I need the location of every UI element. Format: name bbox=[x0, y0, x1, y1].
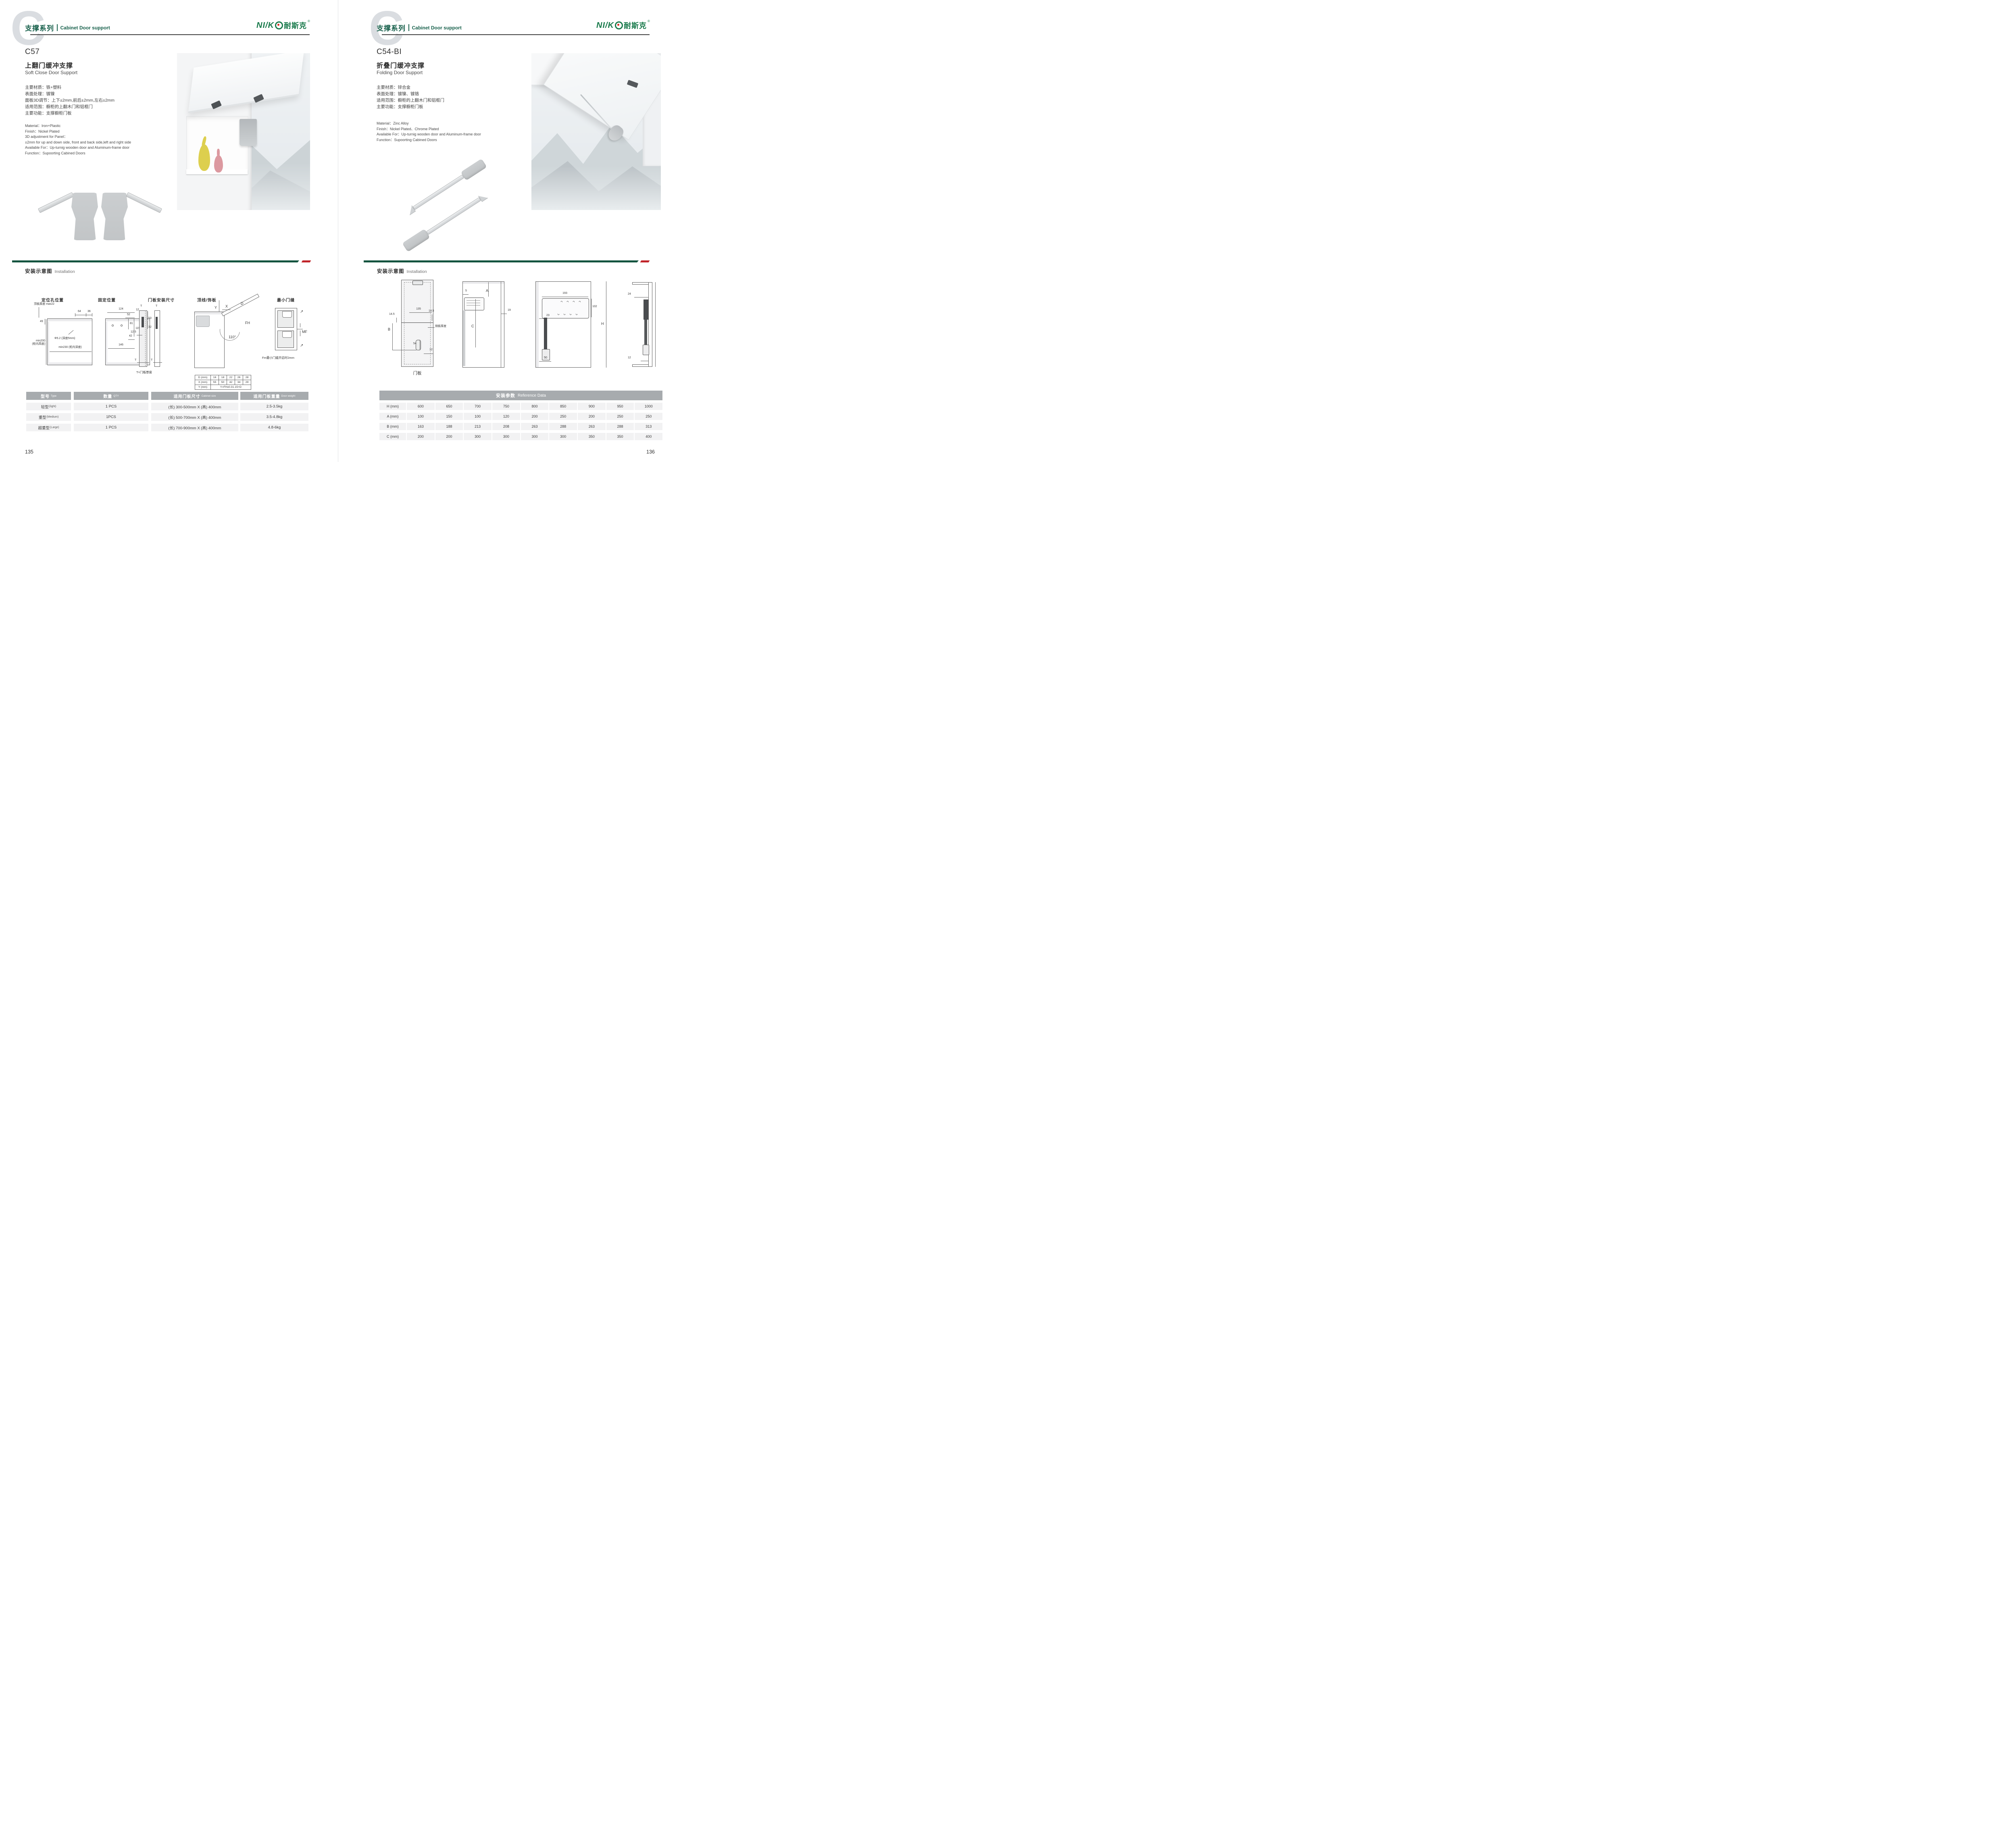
dim-label: C bbox=[471, 324, 474, 328]
product-title-en: Soft Close Door Support bbox=[25, 70, 77, 75]
table-cell: 208 bbox=[492, 423, 520, 430]
dim-line bbox=[591, 299, 591, 317]
table-cell: 263 bbox=[578, 423, 606, 430]
dim-label: T bbox=[151, 359, 152, 362]
table-cell: 300 bbox=[464, 433, 492, 440]
arm-shaft bbox=[413, 175, 464, 210]
table-cell: 188 bbox=[435, 423, 463, 430]
mechanism-slot bbox=[467, 300, 480, 301]
arm-shaft bbox=[426, 197, 481, 235]
table-cell: 750 bbox=[492, 403, 520, 410]
screw-hole bbox=[112, 324, 114, 327]
dim-label: 135 bbox=[416, 308, 421, 311]
diagram-title: 固定位置 bbox=[98, 297, 116, 303]
table-cell: X (mm) bbox=[195, 380, 211, 385]
table-header: 数量 QTY bbox=[74, 392, 148, 400]
cabinet-outline bbox=[462, 281, 504, 368]
logo-target-icon bbox=[615, 21, 623, 29]
table-cell: 55 bbox=[211, 380, 219, 385]
dim-label: H bbox=[601, 322, 604, 326]
table-row: X (mm) 55 50 42 34 29 bbox=[195, 380, 251, 385]
series-header: 支撑系列 Cabinet Door support bbox=[25, 23, 110, 33]
header-en: Type bbox=[51, 395, 56, 397]
mounting-plate-icon bbox=[156, 317, 158, 329]
dim-label: 42 bbox=[129, 335, 132, 338]
table-cell: 300 bbox=[492, 433, 520, 440]
dim-label: T bbox=[156, 305, 157, 308]
top-flange bbox=[632, 282, 649, 285]
dim-line bbox=[219, 300, 219, 312]
section-bar-red bbox=[640, 260, 650, 262]
spec-line: 适用范围：橱柜的上翻木门和铝框门 bbox=[25, 104, 115, 110]
side-panel bbox=[106, 322, 107, 362]
dim-label: 50 bbox=[544, 356, 547, 360]
dim-label: FH bbox=[245, 321, 250, 325]
dim-line bbox=[392, 350, 417, 350]
table-cell: 163 bbox=[407, 423, 435, 430]
installation-heading: 安装示意图 Installation bbox=[25, 267, 75, 275]
dim-line bbox=[128, 339, 135, 340]
dim-line bbox=[463, 294, 469, 295]
dim-line bbox=[488, 282, 489, 297]
spec-line: 面板3D调节：上下±2mm,前后±2mm,左右±2mm bbox=[25, 97, 115, 104]
header-cn: 数量 bbox=[103, 393, 112, 399]
support-arm-left bbox=[38, 192, 74, 213]
catalog-spread: C 支撑系列 Cabinet Door support NI/K 耐斯克 ® C… bbox=[0, 0, 676, 462]
dim-label: 53 bbox=[148, 317, 152, 320]
header-en: QTY bbox=[113, 395, 119, 397]
table-cell: 200 bbox=[521, 413, 549, 420]
mounting-plate-icon bbox=[142, 317, 144, 327]
product-photo bbox=[531, 53, 661, 210]
spec-line: Available For：Up-turnig wooden door and … bbox=[377, 132, 481, 137]
dim-label: 侧板厚度 bbox=[435, 325, 446, 328]
row-label: B (mm) bbox=[379, 423, 406, 430]
dim-line bbox=[542, 297, 588, 297]
logo-target-icon bbox=[275, 21, 283, 29]
table-header: 型号 Type bbox=[26, 392, 71, 400]
table-cell: 600 bbox=[407, 403, 435, 410]
table-cell: 150 bbox=[435, 413, 463, 420]
bottom-bracket bbox=[643, 345, 649, 355]
dim-line bbox=[153, 362, 162, 363]
spec-line: Available For：Up-turnig wooden door and … bbox=[25, 145, 131, 151]
dim-label: T bbox=[140, 305, 142, 308]
dim-line bbox=[634, 297, 649, 297]
logo-latin: NI/K bbox=[596, 21, 614, 30]
table-cell: 400 bbox=[635, 433, 662, 440]
dim-label: 49 bbox=[40, 320, 43, 323]
dim-line bbox=[222, 310, 231, 310]
dim-line bbox=[539, 361, 551, 362]
dim-line bbox=[45, 319, 45, 324]
spec-line: 主要功能：支撑橱柜门板 bbox=[377, 104, 444, 110]
registered-mark: ® bbox=[648, 19, 650, 23]
open-arrow-icon: ↗ bbox=[300, 343, 303, 348]
damper-block bbox=[240, 119, 257, 146]
table-cell: Y=FHx0.31-15+D bbox=[211, 385, 251, 390]
page-number: 135 bbox=[25, 449, 33, 455]
spec-line: Finish：Nickel Plated bbox=[25, 129, 131, 135]
dim-tick bbox=[92, 313, 92, 316]
dim-label: 124 bbox=[119, 308, 123, 311]
spec-line: 主要材质：铁+塑料 bbox=[25, 84, 115, 91]
haze bbox=[531, 166, 661, 210]
row-label: H (mm) bbox=[379, 403, 406, 410]
table-cell: 250 bbox=[606, 413, 634, 420]
bottom-flange bbox=[632, 364, 649, 367]
table-title-cn: 安装参数 bbox=[496, 392, 515, 399]
table-cell: 22 bbox=[227, 375, 235, 380]
table-cell: 300 bbox=[549, 433, 577, 440]
row-label: C (mm) bbox=[379, 433, 406, 440]
table-cell: 300 bbox=[521, 433, 549, 440]
section-bar-green bbox=[12, 260, 299, 262]
table-row: D (mm) 16 18 22 26 28 bbox=[195, 375, 251, 380]
table-row: A (mm) 100 150 100 120 200 250 200 250 2… bbox=[379, 413, 662, 420]
damper-cap bbox=[402, 229, 430, 252]
dim-label: min200 (柜内高度) bbox=[23, 339, 45, 346]
dim-label-line: (柜内高度) bbox=[23, 343, 45, 346]
spec-line: 3D adjustment for Panel： bbox=[25, 134, 131, 140]
dim-line bbox=[300, 323, 300, 327]
table-cell: 18 bbox=[219, 375, 227, 380]
header-rule bbox=[30, 34, 310, 35]
damper-icon bbox=[282, 311, 292, 318]
product-title-en: Folding Door Support bbox=[377, 70, 423, 75]
table-cell: 800 bbox=[521, 403, 549, 410]
dim-line bbox=[641, 361, 649, 361]
dashed-inner bbox=[404, 282, 431, 364]
dim-line bbox=[432, 314, 432, 321]
header-en: Door weight bbox=[281, 395, 296, 397]
vase-pink bbox=[214, 155, 223, 173]
header-cn: 型号 bbox=[41, 393, 50, 399]
screw-hole bbox=[121, 324, 123, 327]
spec-line: Material：Iron+Plastic bbox=[25, 123, 131, 129]
product-image-supports bbox=[394, 164, 500, 248]
door-edge bbox=[501, 282, 501, 367]
type-cn: 轻型 bbox=[41, 404, 49, 410]
logo-cn: 耐斯克 bbox=[284, 20, 307, 31]
table-cell: 50 bbox=[219, 380, 227, 385]
table-cell: 200 bbox=[435, 433, 463, 440]
top-panel bbox=[48, 319, 92, 321]
type-cn: 重型 bbox=[39, 414, 46, 420]
table-cell: 250 bbox=[549, 413, 577, 420]
folding-support-lower bbox=[402, 191, 489, 252]
table-cell: 213 bbox=[464, 423, 492, 430]
table-cell: 29 bbox=[243, 380, 251, 385]
table-header: 适用门板重量 Door weight bbox=[240, 392, 308, 400]
vase-pink-neck bbox=[217, 149, 220, 156]
installation-en: Installation bbox=[407, 269, 427, 274]
table-cell: 42 bbox=[227, 380, 235, 385]
table-cell: (长) 300-500mm X (高) 400mm bbox=[151, 403, 238, 410]
table-title-en: Reference Data bbox=[518, 393, 546, 398]
dim-note: T=门板厚度 bbox=[136, 371, 152, 374]
dim-label: 36 bbox=[87, 310, 91, 313]
dim-label: 24 bbox=[628, 293, 631, 296]
diagram-title: 门板安装尺寸 bbox=[148, 297, 175, 303]
spec-line: 主要材质：锌合金 bbox=[377, 84, 444, 91]
dim-label: 12.5 bbox=[131, 331, 136, 334]
installation-heading: 安装示意图 Installation bbox=[377, 267, 427, 275]
diagram-title: 顶线/饰板 bbox=[197, 297, 217, 303]
page-gutter-line bbox=[338, 0, 338, 462]
dim-note: Fm最小门缝开启时2mm bbox=[262, 356, 294, 360]
arm-shaft bbox=[544, 318, 547, 350]
type-en: (light) bbox=[49, 405, 56, 408]
product-title-cn: 折叠门缓冲支撑 bbox=[377, 60, 425, 70]
dashed-edge bbox=[145, 311, 146, 366]
divider bbox=[57, 24, 58, 31]
dim-line bbox=[137, 335, 142, 335]
brand-logo: NI/K 耐斯克 ® bbox=[596, 20, 650, 31]
dim-tick bbox=[75, 313, 75, 316]
table-cell: 100 bbox=[464, 413, 492, 420]
dim-line bbox=[475, 299, 476, 347]
table-cell: 200 bbox=[578, 413, 606, 420]
bottom-panel bbox=[48, 362, 92, 365]
dim-line bbox=[148, 321, 148, 329]
diagram-title: 最小门缝 bbox=[277, 297, 295, 303]
damper-icon bbox=[416, 340, 421, 350]
damper-block bbox=[196, 316, 210, 327]
table-cell: Y (mm) bbox=[195, 385, 211, 390]
table-cell: 4.8-6kg bbox=[240, 424, 308, 431]
dim-label: min230 (柜内深度) bbox=[58, 346, 82, 349]
side-panel bbox=[48, 322, 49, 362]
table-cell: 288 bbox=[606, 423, 634, 430]
dim-line bbox=[107, 312, 135, 313]
dim-label: 19 bbox=[508, 309, 511, 312]
dim-line bbox=[108, 348, 135, 349]
brand-logo: NI/K 耐斯克 ® bbox=[256, 20, 310, 31]
page-number: 136 bbox=[646, 449, 655, 455]
dim-line bbox=[75, 315, 92, 315]
table-cell: 700 bbox=[464, 403, 492, 410]
side-panel bbox=[536, 282, 539, 367]
table-cell: 200 bbox=[407, 433, 435, 440]
product-model: C54-BI bbox=[377, 48, 402, 56]
hinge-icon bbox=[412, 281, 423, 285]
top-panel bbox=[195, 312, 224, 314]
series-title-cn: 支撑系列 bbox=[377, 23, 406, 33]
dim-label: B bbox=[388, 327, 390, 331]
dim-label: 54 bbox=[413, 342, 417, 345]
dim-line bbox=[128, 319, 129, 329]
header-cn: 适用门板尺寸 bbox=[174, 393, 200, 399]
type-en: (Large) bbox=[50, 426, 59, 429]
table-cell: 26 bbox=[235, 375, 243, 380]
section-bar-red bbox=[302, 260, 311, 262]
dim-line bbox=[396, 318, 397, 322]
dim-label: 12 bbox=[136, 308, 139, 312]
table-cell: 16 bbox=[211, 375, 219, 380]
spec-block-en: Material：Zinc Alloy Finish：Nickel Plated… bbox=[377, 121, 481, 143]
dim-label: 14.5 bbox=[429, 310, 434, 313]
logo-latin: NI/K bbox=[256, 21, 274, 30]
dim-line bbox=[125, 318, 135, 318]
series-title-en: Cabinet Door support bbox=[412, 25, 462, 31]
table-row: C (mm) 200 200 300 300 300 300 350 350 4… bbox=[379, 433, 662, 440]
dim-label: 32 bbox=[148, 326, 152, 329]
dim-label: 5 bbox=[465, 289, 467, 293]
table-cell: 34 bbox=[235, 380, 243, 385]
type-cn: 超重型 bbox=[38, 425, 50, 431]
table-cell: 1 PCS bbox=[74, 403, 148, 410]
page-left: C 支撑系列 Cabinet Door support NI/K 耐斯克 ® C… bbox=[0, 0, 338, 462]
diagram-caption: 门板 bbox=[413, 371, 422, 376]
dim-label: MF bbox=[302, 330, 307, 334]
table-cell: 28 bbox=[243, 375, 251, 380]
spec-line: ±2mm for up and down side, front and bac… bbox=[25, 140, 131, 146]
product-photo bbox=[177, 53, 310, 210]
dim-label: 12 bbox=[429, 348, 433, 352]
table-cell: 100 bbox=[407, 413, 435, 420]
series-header: 支撑系列 Cabinet Door support bbox=[377, 23, 462, 33]
dim-line bbox=[134, 319, 134, 337]
dim-label: 52 bbox=[127, 313, 130, 316]
table-title: 安装参数 Reference Data bbox=[379, 391, 662, 400]
product-model: C57 bbox=[25, 48, 40, 56]
dim-label: 193 bbox=[562, 292, 567, 295]
table-cell: 288 bbox=[549, 423, 577, 430]
spec-line: 表面处理：镀镍、镀铬 bbox=[377, 91, 444, 97]
mechanism-slot bbox=[467, 303, 480, 303]
table-row: H (mm) 600 650 700 750 800 850 900 950 1… bbox=[379, 403, 662, 410]
cabinet-outline bbox=[47, 318, 92, 365]
divider bbox=[408, 24, 409, 31]
table-cell: (长) 500-700mm X (高) 400mm bbox=[151, 413, 238, 421]
page-right: C 支撑系列 Cabinet Door support NI/K 耐斯克 ® C… bbox=[338, 0, 676, 462]
mechanism-slot bbox=[467, 305, 480, 306]
damper-cap bbox=[460, 158, 487, 181]
table-cell: 263 bbox=[521, 423, 549, 430]
dim-tick bbox=[86, 313, 86, 316]
dim-line bbox=[420, 340, 420, 350]
open-arrow-icon: ↗ bbox=[300, 310, 303, 314]
installation-cn: 安装示意图 bbox=[377, 267, 404, 275]
dim-line bbox=[297, 329, 303, 329]
dim-label: T bbox=[135, 359, 136, 362]
product-title-cn: 上翻门缓冲支撑 bbox=[25, 60, 73, 70]
spec-block-en: Material：Iron+Plastic Finish：Nickel Plat… bbox=[25, 123, 131, 156]
spec-line: Finish：Nickel Plated、Chrome Plated bbox=[377, 127, 481, 132]
table-cell: 950 bbox=[606, 403, 634, 410]
table-row: Y (mm) Y=FHx0.31-15+D bbox=[195, 385, 251, 390]
dim-line bbox=[392, 323, 393, 350]
dim-label: Y bbox=[215, 306, 217, 310]
table-cell: 1 PCS bbox=[74, 424, 148, 431]
installation-cn: 安装示意图 bbox=[25, 267, 52, 275]
dim-label: 102 bbox=[592, 305, 597, 308]
table-cell: 重型(Medium) bbox=[26, 413, 71, 421]
door-strip bbox=[463, 310, 465, 366]
mechanism-block bbox=[464, 297, 484, 310]
arm-shaft bbox=[644, 320, 647, 345]
dim-label: X bbox=[225, 304, 228, 308]
spec-line: Function：Supoorting Cabined Doors bbox=[25, 151, 131, 156]
diagram-title: 定位孔位置 bbox=[42, 297, 64, 303]
spec-line: Function：Supoorting Cabined Doors bbox=[377, 137, 481, 143]
door-split-line bbox=[402, 322, 433, 323]
support-cover-left bbox=[71, 193, 98, 240]
header-cn: 适用门板重量 bbox=[254, 393, 280, 399]
table-cell: 3.5-4.8kg bbox=[240, 413, 308, 421]
series-title-en: Cabinet Door support bbox=[60, 25, 110, 31]
table-cell: 超重型(Large) bbox=[26, 424, 71, 431]
dimension-table: D (mm) 16 18 22 26 28 X (mm) 55 50 42 34… bbox=[195, 375, 251, 390]
table-cell: 350 bbox=[606, 433, 634, 440]
support-arm-right bbox=[126, 192, 162, 213]
table-cell: 轻型(light) bbox=[26, 403, 71, 410]
table-cell: 120 bbox=[492, 413, 520, 420]
table-cell: 1PCS bbox=[74, 413, 148, 421]
dim-label: 64 bbox=[78, 310, 81, 313]
table-cell: 313 bbox=[635, 423, 662, 430]
table-cell: 650 bbox=[435, 403, 463, 410]
dim-label: D bbox=[241, 302, 244, 306]
spec-block-cn: 主要材质：铁+塑料 表面处理：镀镍 面板3D调节：上下±2mm,前后±2mm,左… bbox=[25, 84, 115, 116]
spec-block-cn: 主要材质：锌合金 表面处理：镀镍、镀铬 适用范围：橱柜的上翻木门和铝框门 主要功… bbox=[377, 84, 444, 110]
type-en: (Medium) bbox=[47, 416, 59, 418]
dim-label: 顶板厚度 max22 bbox=[34, 303, 54, 306]
logo-cn: 耐斯克 bbox=[624, 20, 647, 31]
header-rule bbox=[382, 34, 650, 35]
dim-label: 14.5 bbox=[389, 313, 395, 316]
table-cell: 1000 bbox=[635, 403, 662, 410]
table-cell: 900 bbox=[578, 403, 606, 410]
dim-line bbox=[606, 281, 606, 368]
table-row: B (mm) 163 188 213 208 263 288 263 288 3… bbox=[379, 423, 662, 430]
dim-label: 23 bbox=[546, 314, 550, 317]
header-en: Cabinet size bbox=[202, 395, 216, 397]
dim-label: Φ5.2 (深度5mm) bbox=[54, 337, 75, 340]
table-cell: D (mm) bbox=[195, 375, 211, 380]
panel-edge bbox=[655, 282, 656, 367]
table-cell: 350 bbox=[578, 433, 606, 440]
spec-line: 表面处理：镀镍 bbox=[25, 91, 115, 97]
top-panel bbox=[463, 282, 504, 284]
table-cell: (长) 700-900mm X (高) 400mm bbox=[151, 424, 238, 431]
dim-label: 146 bbox=[119, 343, 123, 347]
arm-cap bbox=[644, 300, 648, 320]
dim-line bbox=[300, 331, 300, 336]
dim-line bbox=[46, 319, 46, 365]
product-image-supports bbox=[34, 181, 155, 245]
dim-line bbox=[148, 311, 148, 320]
spec-line: 适用范围：橱柜的上翻木门和铝框门 bbox=[377, 97, 444, 104]
dim-line bbox=[39, 307, 39, 318]
dim-line bbox=[428, 327, 435, 328]
series-title-cn: 支撑系列 bbox=[25, 23, 54, 33]
table-cell: 850 bbox=[549, 403, 577, 410]
dim-line bbox=[424, 354, 433, 354]
table-header: 适用门板尺寸 Cabinet size bbox=[151, 392, 238, 400]
dim-line bbox=[501, 314, 507, 314]
dim-label-line: min200 bbox=[23, 339, 45, 343]
registered-mark: ® bbox=[308, 19, 310, 23]
section-bar-green bbox=[364, 260, 639, 262]
dim-label: 81 bbox=[130, 322, 133, 325]
support-cover-right bbox=[101, 193, 128, 240]
damper-icon bbox=[282, 331, 292, 338]
dim-line bbox=[50, 352, 92, 352]
spec-line: Material：Zinc Alloy bbox=[377, 121, 481, 127]
table-cell: 250 bbox=[635, 413, 662, 420]
